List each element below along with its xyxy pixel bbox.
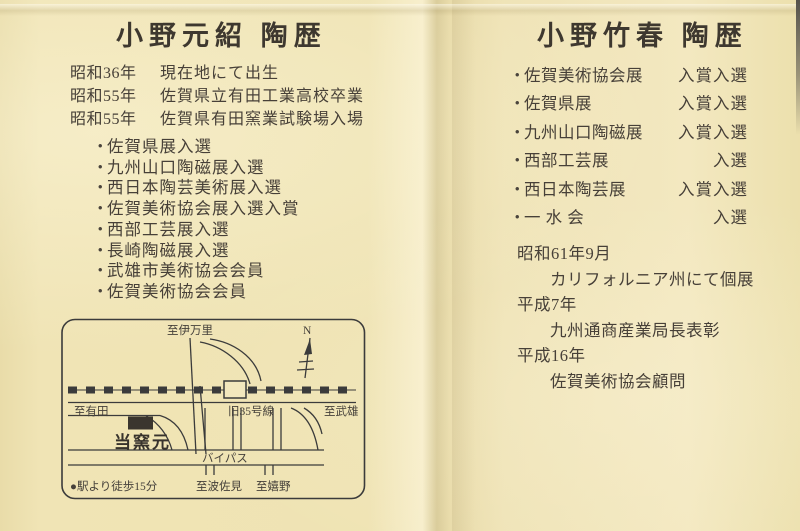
timeline-year: 平成7年 [517, 292, 754, 318]
bullet-icon: ・ [509, 176, 524, 204]
page-left: 小野元紹 陶歴 昭和36年 現在地にて出生 昭和55年 佐賀県立有田工業高校卒業… [0, 0, 437, 531]
award-item: ・佐賀美術協会展入選入賞 [92, 199, 300, 220]
bullet-icon: ・ [92, 178, 107, 199]
ramp-curve-outer [200, 342, 250, 384]
bullet-icon: ・ [92, 241, 107, 262]
compass-arrow-icon [304, 339, 312, 355]
history-event: 佐賀県有田窯業試験場入場 [160, 109, 364, 132]
bullet-icon: ・ [509, 147, 524, 175]
award-row: ・ 佐賀県展 入賞入選 [509, 90, 748, 118]
top-crease [0, 4, 800, 16]
award-row: ・ 西部工芸展 入選 [509, 147, 748, 175]
award-result: 入選 [713, 147, 748, 175]
bullet-icon: ・ [92, 220, 107, 241]
bullet-icon: ・ [92, 137, 107, 158]
award-row: ・ 佐賀美術協会展 入賞入選 [509, 62, 748, 90]
map-label-bypass: バイパス [202, 452, 248, 465]
center-fold-shadow [452, 0, 478, 531]
map-label-to-imari: 至伊万里 [167, 324, 213, 337]
awards-list-right: ・ 佐賀美術協会展 入賞入選 ・ 佐賀県展 入賞入選 ・ 九州山口陶磁展 入賞入… [509, 62, 748, 232]
history-year: 昭和55年 [70, 86, 160, 109]
kiln-marker [128, 417, 153, 430]
award-item: ・西日本陶芸美術展入選 [92, 178, 300, 199]
timeline-event: 九州通商産業局長表彰 [517, 318, 754, 344]
bullet-icon: ・ [92, 261, 107, 282]
compass-tick [299, 361, 313, 362]
map-label-to-takeo: 至武雄 [324, 404, 359, 418]
award-item: ・佐賀県展入選 [92, 137, 300, 158]
station-marker [224, 381, 246, 398]
award-result: 入賞入選 [678, 62, 748, 90]
award-result: 入選 [713, 204, 748, 232]
award-name: 西日本陶芸展 [524, 176, 626, 204]
award-result: 入賞入選 [678, 176, 748, 204]
history-list: 昭和36年 現在地にて出生 昭和55年 佐賀県立有田工業高校卒業 昭和55年 佐… [70, 63, 364, 131]
timeline-event: カリフォルニア州にて個展 [517, 267, 754, 293]
history-event: 現在地にて出生 [160, 63, 279, 86]
awards-list-left: ・佐賀県展入選 ・九州山口陶磁展入選 ・西日本陶芸美術展入選 ・佐賀美術協会展入… [92, 137, 300, 303]
location-map: 至伊万里 N 至有田 旧35号線 至武雄 当窯元 バイパス 至波佐見 至嬉野 ●… [60, 318, 367, 500]
award-name: 一 水 会 [524, 204, 584, 232]
timeline-event: 佐賀美術協会顧問 [517, 369, 754, 395]
road-to-imari [190, 338, 196, 454]
award-text: 西日本陶芸美術展入選 [107, 178, 282, 199]
award-text: 佐賀県展入選 [107, 137, 212, 158]
award-row: ・ 一 水 会 入選 [509, 204, 748, 232]
block-street-curve [291, 408, 318, 450]
history-row: 昭和55年 佐賀県立有田工業高校卒業 [70, 86, 364, 109]
award-name: 佐賀美術協会展 [524, 62, 643, 90]
timeline-year: 平成16年 [517, 343, 754, 369]
compass-tick [297, 369, 314, 370]
award-name: 佐賀県展 [524, 90, 592, 118]
award-item: ・西部工芸展入選 [92, 220, 300, 241]
award-result: 入賞入選 [678, 119, 748, 147]
location-map-drawing: 至伊万里 N 至有田 旧35号線 至武雄 当窯元 バイパス 至波佐見 至嬉野 ●… [60, 318, 367, 500]
award-item: ・武雄市美術協会会員 [92, 261, 300, 282]
page-right-title: 小野竹春 陶歴 [537, 22, 748, 50]
bullet-icon: ・ [509, 204, 524, 232]
page-right: 小野竹春 陶歴 ・ 佐賀美術協会展 入賞入選 ・ 佐賀県展 入賞入選 ・ 九州山… [437, 0, 800, 531]
award-row: ・ 西日本陶芸展 入賞入選 [509, 176, 748, 204]
award-text: 佐賀美術協会会員 [107, 282, 247, 303]
award-item: ・九州山口陶磁展入選 [92, 158, 300, 179]
award-item: ・佐賀美術協会会員 [92, 282, 300, 303]
award-name: 西部工芸展 [524, 147, 609, 175]
map-label-to-hasami: 至波佐見 [196, 479, 242, 493]
history-year: 昭和36年 [70, 63, 160, 86]
history-row: 昭和55年 佐賀県有田窯業試験場入場 [70, 109, 364, 132]
award-name: 九州山口陶磁展 [524, 119, 643, 147]
history-row: 昭和36年 現在地にて出生 [70, 63, 364, 86]
history-event: 佐賀県立有田工業高校卒業 [160, 86, 364, 109]
map-label-to-arita: 至有田 [74, 404, 109, 418]
bullet-icon: ・ [92, 199, 107, 220]
bullet-icon: ・ [509, 90, 524, 118]
scan-edge [796, 0, 800, 135]
award-text: 九州山口陶磁展入選 [107, 158, 265, 179]
bullet-icon: ・ [509, 119, 524, 147]
brochure-scan: 小野元紹 陶歴 昭和36年 現在地にて出生 昭和55年 佐賀県立有田工業高校卒業… [0, 0, 800, 531]
page-left-title: 小野元紹 陶歴 [116, 22, 327, 50]
bullet-icon: ・ [509, 62, 524, 90]
history-year: 昭和55年 [70, 109, 160, 132]
map-label-route-35: 旧35号線 [228, 404, 274, 418]
bullet-icon: ・ [92, 282, 107, 303]
award-item: ・長崎陶磁展入選 [92, 241, 300, 262]
award-text: 佐賀美術協会展入選入賞 [107, 199, 300, 220]
award-text: 西部工芸展入選 [107, 220, 230, 241]
map-label-to-ureshino: 至嬉野 [256, 479, 291, 493]
award-text: 長崎陶磁展入選 [107, 241, 230, 262]
kiln-label: 当窯元 [114, 432, 171, 452]
award-text: 武雄市美術協会会員 [107, 261, 265, 282]
award-result: 入賞入選 [678, 90, 748, 118]
compass-north-icon: N [303, 325, 312, 337]
timeline: 昭和61年9月 カリフォルニア州にて個展 平成7年 九州通商産業局長表彰 平成1… [517, 241, 754, 395]
award-row: ・ 九州山口陶磁展 入賞入選 [509, 119, 748, 147]
bullet-icon: ・ [92, 158, 107, 179]
timeline-year: 昭和61年9月 [517, 241, 754, 267]
walk-note: ●駅より徒歩15分 [70, 479, 158, 493]
